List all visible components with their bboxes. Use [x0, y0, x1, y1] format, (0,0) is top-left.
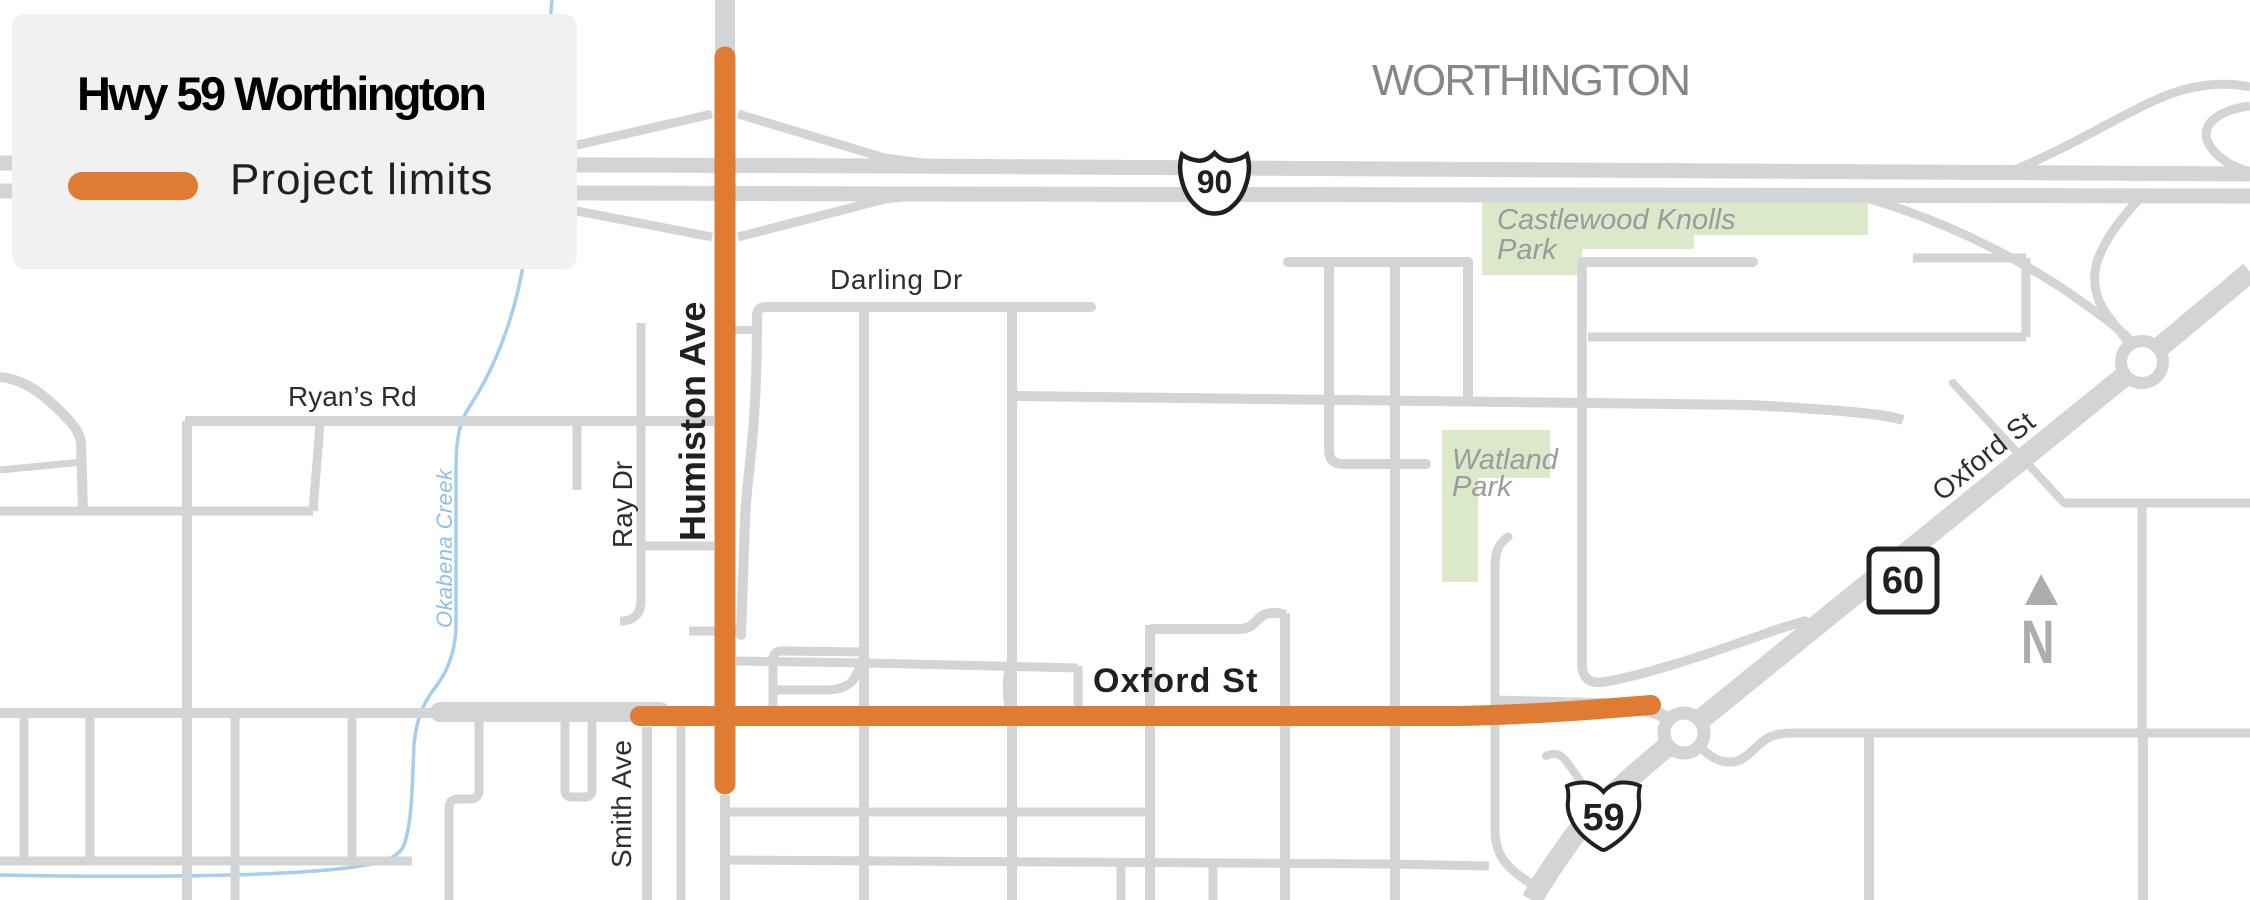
svg-text:Humiston Ave: Humiston Ave — [672, 302, 713, 541]
svg-text:Okabena Creek: Okabena Creek — [432, 468, 457, 628]
svg-text:N: N — [2021, 609, 2054, 677]
svg-text:WORTHINGTON: WORTHINGTON — [1372, 56, 1694, 105]
svg-text:90: 90 — [1197, 164, 1233, 200]
svg-text:60: 60 — [1882, 560, 1924, 602]
svg-text:Hwy 59 Worthington: Hwy 59 Worthington — [77, 67, 487, 120]
svg-text:Project limits: Project limits — [230, 155, 493, 204]
svg-text:Ryan’s Rd: Ryan’s Rd — [288, 381, 417, 412]
svg-text:Ray Dr: Ray Dr — [607, 461, 638, 548]
svg-text:59: 59 — [1582, 797, 1624, 839]
svg-text:Park: Park — [1497, 234, 1558, 266]
svg-text:Park: Park — [1452, 471, 1513, 503]
svg-text:Darling Dr: Darling Dr — [830, 264, 963, 295]
svg-text:Smith Ave: Smith Ave — [606, 740, 637, 868]
svg-text:Castlewood Knolls: Castlewood Knolls — [1497, 204, 1736, 236]
svg-text:Oxford St: Oxford St — [1093, 662, 1259, 700]
